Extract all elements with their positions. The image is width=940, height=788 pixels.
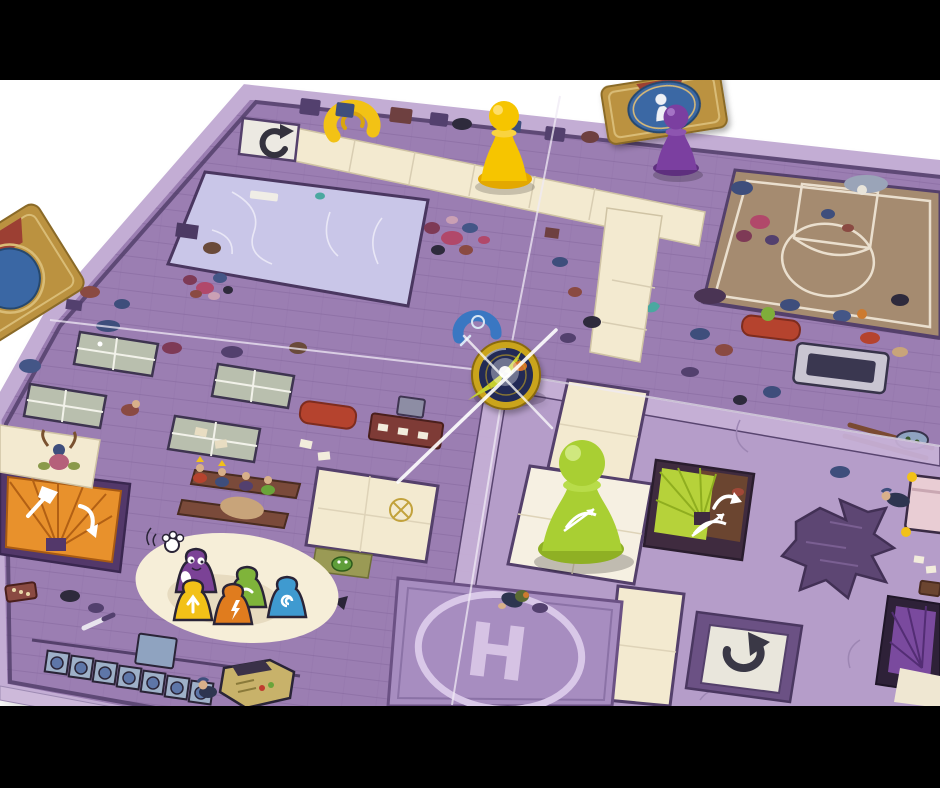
rotate-ccw-tile — [239, 118, 299, 161]
helipad-letter: H — [461, 607, 533, 700]
rotate-cw-tile — [686, 612, 802, 702]
machine — [397, 396, 425, 417]
board-scene: H — [0, 0, 940, 788]
skater — [315, 193, 325, 200]
letterbox-top — [0, 0, 940, 80]
product-photo: H — [0, 0, 940, 788]
cream-room — [306, 468, 438, 562]
helipad: H — [388, 578, 622, 719]
tall-locker — [135, 634, 177, 669]
character-card-top-right — [600, 69, 728, 145]
letterbox-bottom — [0, 706, 940, 788]
spiral-staircase-green — [644, 460, 754, 560]
